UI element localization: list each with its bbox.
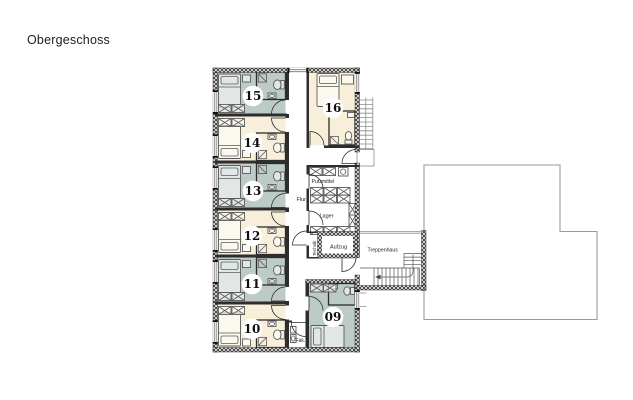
room-badge-10: 10	[242, 319, 263, 340]
window	[213, 90, 218, 114]
bedside-table	[243, 167, 251, 174]
window	[213, 260, 218, 284]
svg-text:16: 16	[325, 101, 342, 115]
bedside-table	[243, 261, 251, 268]
svg-text:11: 11	[244, 277, 261, 291]
svg-text:14: 14	[244, 136, 261, 150]
label-faekalienraum: Fäk.	[296, 338, 306, 344]
room-badge-12: 12	[242, 226, 263, 247]
svg-text:13: 13	[245, 184, 262, 198]
room-badge-09: 09	[323, 307, 344, 328]
window	[213, 166, 218, 190]
svg-text:12: 12	[244, 229, 261, 243]
svg-text:10: 10	[244, 322, 261, 336]
stairwell	[360, 231, 422, 285]
door-arc	[293, 231, 307, 245]
bed	[219, 166, 241, 199]
svg-text:15: 15	[245, 89, 262, 103]
window	[213, 228, 218, 252]
room-badge-13: 13	[243, 181, 264, 202]
stair-walk-line	[376, 255, 413, 278]
bed	[219, 260, 241, 293]
bed	[219, 313, 241, 346]
floor-plan-page: Obergeschoss	[0, 0, 633, 400]
bedside-table	[243, 339, 251, 346]
room-badge-14: 14	[242, 133, 263, 154]
window	[355, 72, 360, 94]
floor-plan-drawing: 15 14 13 12 11 10 16 09 Flur Putzmittel …	[0, 0, 633, 400]
room-badge-15: 15	[243, 86, 264, 107]
label-aufzug: Aufzug	[330, 245, 347, 251]
svg-text:09: 09	[325, 310, 342, 324]
window	[213, 320, 218, 344]
corridor-glazing	[288, 68, 309, 73]
label-lager: Lager	[320, 214, 334, 220]
door-arc	[342, 258, 356, 272]
label-putzmittel: Putzmittel	[312, 179, 335, 185]
label-flur: Flur	[297, 197, 307, 203]
bed	[219, 74, 241, 107]
label-treppenhaus: Treppenhaus	[368, 248, 399, 254]
window	[355, 290, 367, 310]
bed	[311, 326, 344, 348]
bed	[219, 220, 241, 253]
room-badge-16: 16	[323, 98, 344, 119]
bed	[219, 126, 241, 159]
building-outline	[424, 165, 597, 320]
bedside-table	[243, 75, 251, 82]
door-arc	[342, 150, 356, 164]
label-technik: Technik	[312, 240, 317, 256]
dresser	[342, 75, 354, 84]
window	[213, 134, 218, 158]
room-badge-11: 11	[242, 274, 263, 295]
